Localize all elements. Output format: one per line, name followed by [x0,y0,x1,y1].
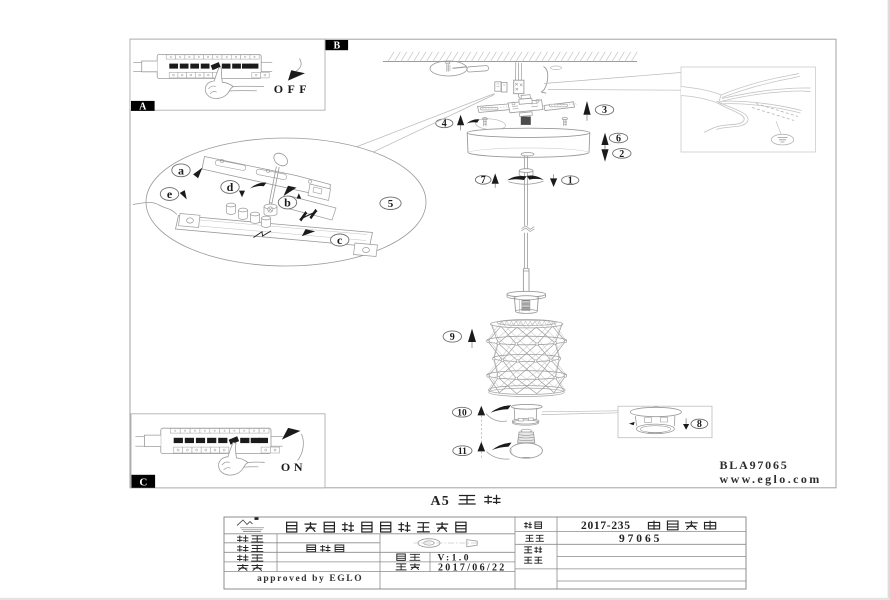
svg-text:B: B [333,41,340,52]
svg-text:BLA97065: BLA97065 [720,458,789,472]
svg-text:5: 5 [388,198,394,210]
svg-text:3: 3 [602,105,607,116]
svg-text:e: e [167,187,173,201]
svg-text:A: A [139,101,147,112]
svg-text:C: C [139,477,147,489]
svg-text:97065: 97065 [619,533,662,545]
svg-text:4: 4 [442,119,447,130]
svg-text:7: 7 [481,175,486,186]
svg-text:a: a [178,163,184,177]
svg-text:approved by EGLO: approved by EGLO [257,574,363,584]
svg-text:2017-235: 2017-235 [581,520,631,532]
svg-text:d: d [227,180,234,194]
svg-text:10: 10 [457,408,467,418]
svg-text:9: 9 [450,332,455,343]
svg-text:c: c [337,233,343,247]
svg-text:OFF: OFF [274,82,311,96]
svg-text:11: 11 [458,447,467,457]
svg-text:6: 6 [616,133,621,144]
svg-text:8: 8 [697,419,702,430]
svg-text:www.eglo.com: www.eglo.com [720,472,822,486]
svg-text:2: 2 [619,149,624,160]
svg-text:A5: A5 [431,494,451,509]
svg-text:2017/06/22: 2017/06/22 [438,562,507,573]
svg-text:b: b [284,196,291,210]
svg-text:1: 1 [568,176,573,187]
svg-text:ON: ON [281,460,306,474]
